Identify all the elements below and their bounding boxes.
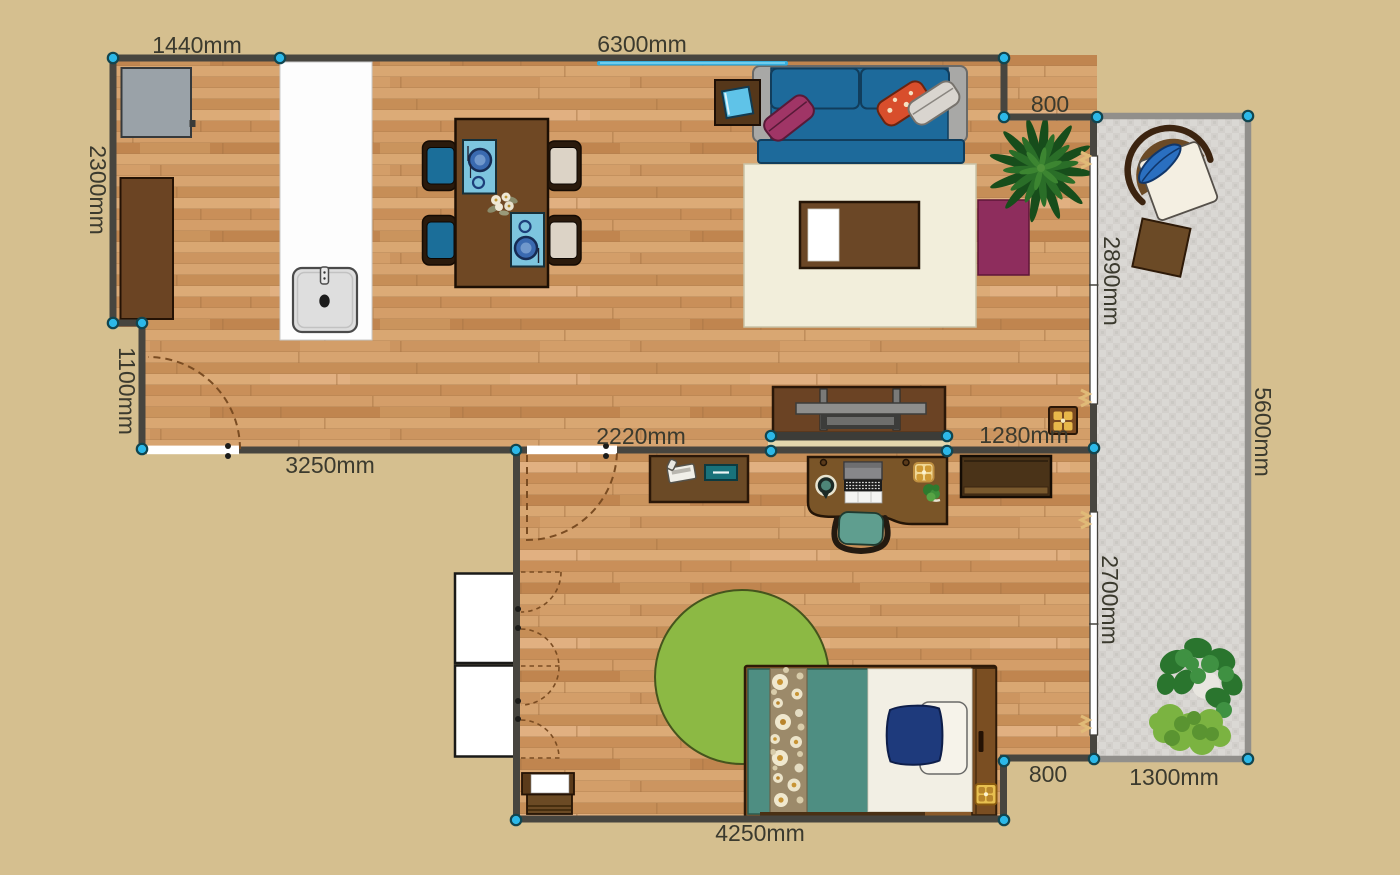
svg-text:2700mm: 2700mm — [1097, 555, 1123, 644]
svg-text:4250mm: 4250mm — [715, 820, 804, 846]
svg-text:2220mm: 2220mm — [596, 423, 685, 449]
svg-text:1440mm: 1440mm — [152, 32, 241, 58]
svg-text:2300mm: 2300mm — [85, 145, 111, 234]
svg-text:800: 800 — [1031, 91, 1069, 117]
svg-text:1100mm: 1100mm — [114, 347, 140, 435]
svg-text:1280mm: 1280mm — [979, 422, 1068, 448]
svg-text:2890mm: 2890mm — [1099, 236, 1125, 325]
svg-text:5600mm: 5600mm — [1250, 387, 1276, 476]
svg-text:3250mm: 3250mm — [285, 452, 374, 478]
svg-text:6300mm: 6300mm — [597, 31, 686, 57]
svg-text:1300mm: 1300mm — [1129, 764, 1218, 790]
svg-text:800: 800 — [1029, 761, 1067, 787]
